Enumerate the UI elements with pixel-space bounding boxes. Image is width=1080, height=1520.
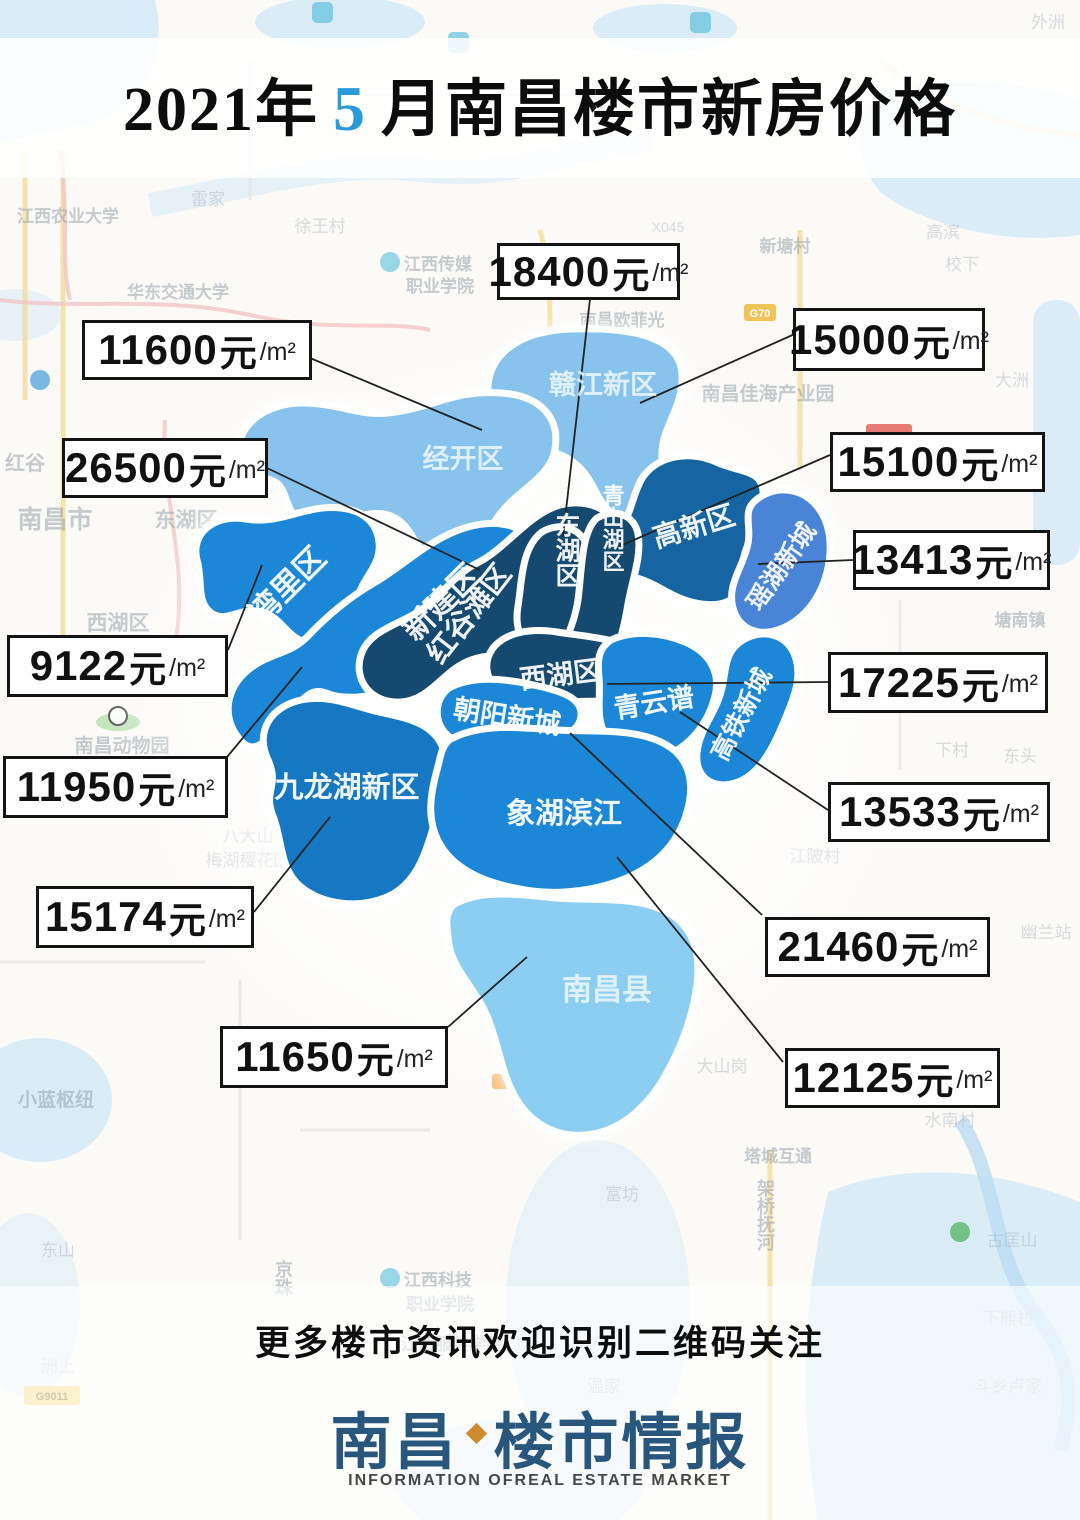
price-unit-per-sqm: /m² [956,1062,992,1095]
price-unit-yuan: 元 [913,313,950,367]
district-label-nanchangxian: 南昌县 [562,974,652,1007]
price-value: 15174 [45,893,167,941]
price-label-chaoyangxincheng: 21460元/m² [765,917,990,977]
price-label-nanchangxian: 11650元/m² [220,1026,448,1088]
price-value: 13533 [839,788,961,836]
bg-label: 幽兰站 [1021,923,1072,942]
bg-label: 下村 [935,741,969,760]
price-label-donghuqu: 18400元/m² [497,243,680,300]
district-label-qingshanhuqu: 青山湖区 [600,484,625,572]
college-pin-icon [380,252,400,272]
price-value: 26500 [65,444,187,492]
price-unit-yuan: 元 [961,435,998,489]
bg-label: 东山 [41,1241,75,1260]
price-unit-per-sqm: /m² [1002,666,1038,699]
logo-text-right: 楼市情报 [494,1392,750,1481]
college-pin-icon [380,1268,400,1288]
price-label-jiulonghuxinqu: 15174元/m² [36,886,254,948]
brand-logo: 南昌楼市情报 [0,1392,1080,1481]
price-label-xianghubinjiang: 12125元/m² [785,1048,1000,1108]
price-label-yaohuxincheng: 13413元/m² [853,530,1050,590]
mountain-pin-icon [950,1222,970,1242]
price-unit-per-sqm: /m² [229,452,265,485]
title-suffix: 月南昌楼市新房价格 [381,76,957,144]
price-unit-per-sqm: /m² [941,931,977,964]
bg-label: 塔城互通 [744,1146,812,1166]
bg-label: 小蓝枢纽 [18,1088,94,1111]
price-unit-yuan: 元 [963,785,1000,839]
logo-diamond-icon [465,1423,486,1444]
university-pin-icon [30,370,50,390]
bg-label: 架桥抚河 [755,1178,775,1251]
price-unit-per-sqm: /m² [1001,446,1037,479]
price-value: 21460 [778,923,900,971]
logo-text-left: 南昌 [330,1392,458,1481]
bg-label: 职业学院 [406,276,474,296]
price-value: 11600 [98,326,217,374]
bg-label: 雷家 [191,190,225,209]
price-value: 13413 [852,536,974,584]
price-unit-yuan: 元 [220,323,257,377]
page-title: 2021年5月南昌楼市新房价格 [0,58,1080,148]
price-unit-per-sqm: /m² [169,650,205,683]
district-label-jiulonghuxinqu: 九龙湖新区 [274,771,419,804]
price-unit-yuan: 元 [138,760,175,814]
bg-label: 红谷 [5,451,46,475]
footer-slogan: 更多楼市资讯欢迎识别二维码关注 [0,1315,1080,1366]
bg-label: 南昌市 [17,505,92,534]
price-unit-yuan: 元 [916,1051,953,1105]
price-unit-per-sqm: /m² [178,771,214,804]
price-label-xinjianqu: 11950元/m² [3,756,228,818]
bg-label: 东头 [1003,747,1037,766]
price-value: 17225 [838,659,960,707]
price-unit-per-sqm: /m² [953,323,989,356]
title-year: 2021年 [123,76,319,144]
price-label-qingyunpu: 13533元/m² [828,782,1050,842]
price-unit-yuan: 元 [129,639,166,693]
title-month: 5 [319,73,381,144]
logo-tagline: INFORMATION OFREAL ESTATE MARKET [0,1472,1080,1490]
district-label-jingkaiqu: 经开区 [423,443,504,474]
bg-label: 塘南镇 [995,610,1046,630]
price-unit-yuan: 元 [357,1030,394,1084]
bg-label: 富坊 [605,1185,639,1204]
bg-label: 新塘村 [760,236,811,256]
price-value: 15000 [789,316,911,364]
bg-label: 大洲 [995,371,1029,390]
price-value: 9122 [30,642,127,690]
price-unit-yuan: 元 [169,890,206,944]
bg-label: 江西农业大学 [17,206,119,226]
price-unit-per-sqm: /m² [260,334,296,367]
poi-square-icon [690,12,711,33]
price-unit-per-sqm: /m² [1003,796,1039,829]
price-label-honggutanqu: 26500元/m² [62,438,268,498]
district-label-donghuqu: 东湖区 [552,512,581,588]
price-label-wanliqu: 9122元/m² [7,635,228,697]
poi-square-icon [312,2,333,23]
bg-label: 古匡山 [987,1231,1038,1250]
price-unit-yuan: 元 [612,245,649,299]
bg-label: 外洲 [1031,13,1065,32]
price-label-ganjiangxinqu: 15000元/m² [793,308,985,371]
price-label-jingkaiqu: 11600元/m² [82,320,312,380]
price-label-qingshanhuqu: 15100元/m² [830,432,1045,492]
price-value: 18400 [489,248,611,296]
price-unit-per-sqm: /m² [209,901,245,934]
price-unit-yuan: 元 [901,920,938,974]
infographic-canvas: G70 G9011 江西农业大学 华东交通大学 雷家 徐王村 江西传媒 职业学院… [0,0,1080,1520]
bg-label: 徐王村 [295,217,346,236]
bg-label: 校下 [945,255,979,274]
price-value: 12125 [793,1054,915,1102]
price-value: 11950 [17,763,136,811]
price-unit-yuan: 元 [962,656,999,710]
bg-label: 江西传媒 [404,254,473,274]
bg-label: 水南村 [925,1111,976,1130]
district-label-xianghubinjiang: 象湖滨江 [506,797,622,830]
bg-label: 华东交通大学 [127,282,229,302]
price-value: 15100 [838,438,960,486]
price-unit-yuan: 元 [189,441,226,495]
price-value: 11650 [235,1033,354,1081]
g70-badge-label: G70 [750,308,771,320]
price-unit-per-sqm: /m² [1015,544,1051,577]
price-unit-per-sqm: /m² [652,255,688,288]
price-unit-yuan: 元 [975,533,1012,587]
price-label-xihuqu: 17225元/m² [828,652,1048,713]
bg-label: X045 [652,219,685,235]
bg-label: 高滨 [926,223,960,242]
district-label-ganjiangxinqu: 赣江新区 [549,369,657,400]
price-unit-per-sqm: /m² [397,1041,433,1074]
